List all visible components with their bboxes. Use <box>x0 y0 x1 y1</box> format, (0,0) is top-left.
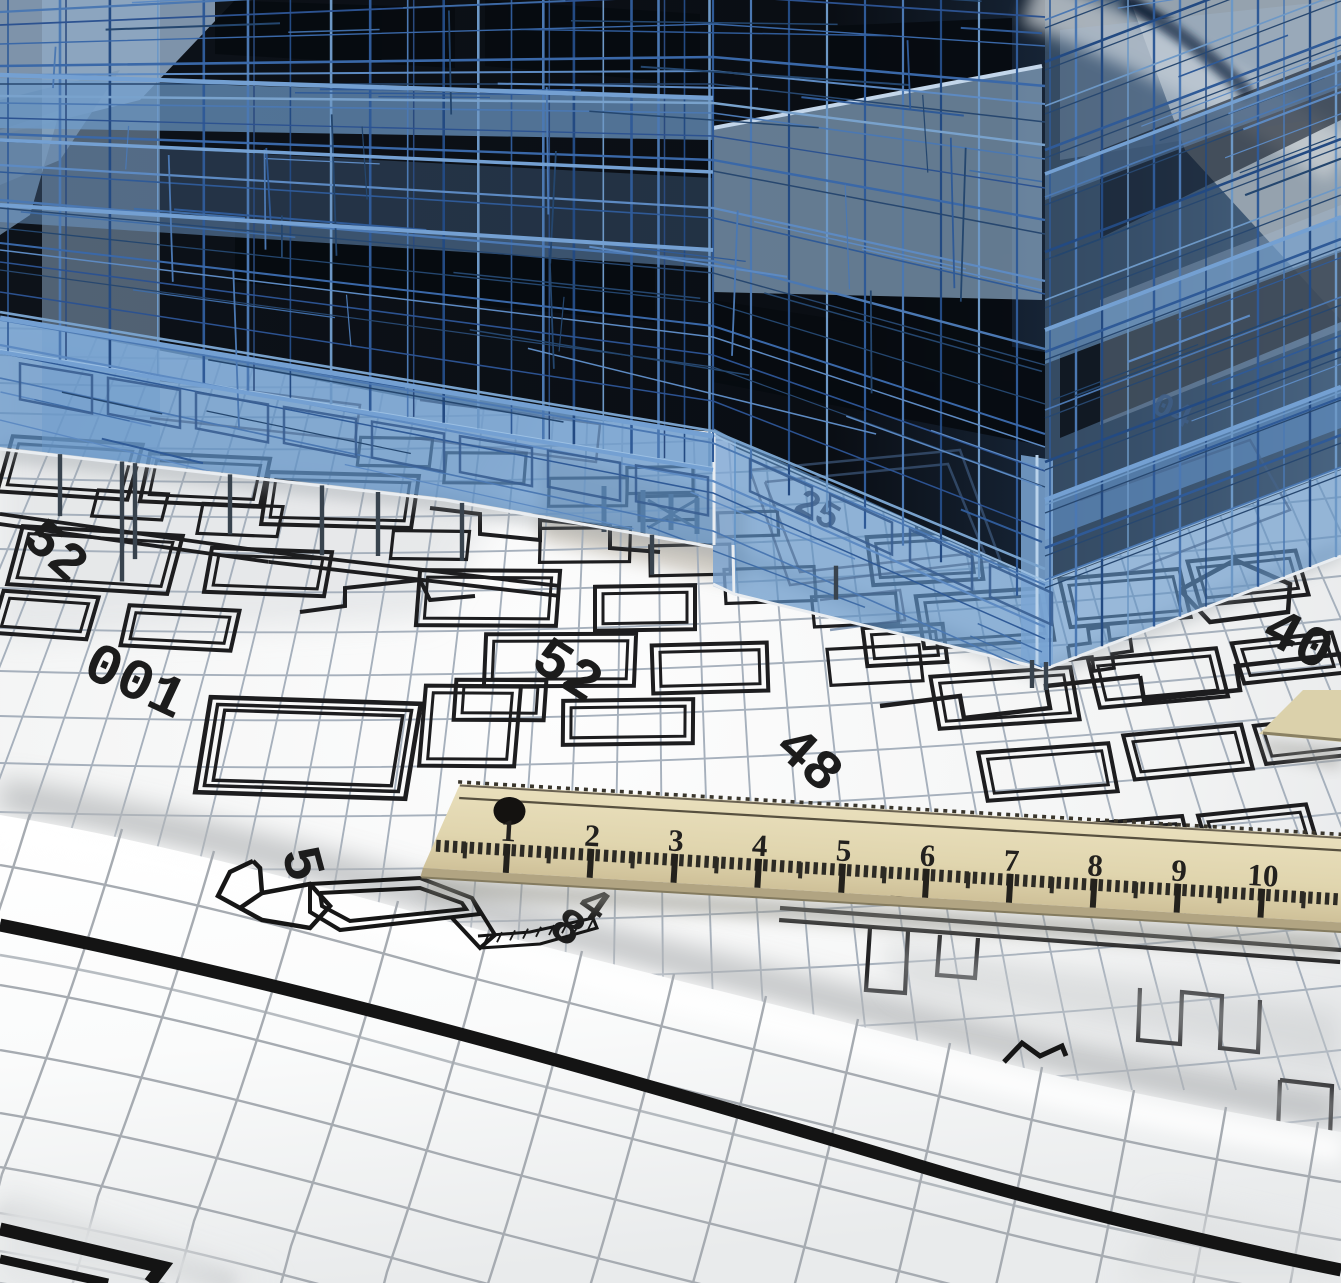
svg-text:8: 8 <box>1087 847 1105 883</box>
svg-text:9: 9 <box>1170 852 1188 888</box>
svg-text:3: 3 <box>667 822 685 858</box>
svg-text:2: 2 <box>583 818 601 854</box>
svg-text:7: 7 <box>1003 842 1021 878</box>
svg-text:6: 6 <box>919 837 937 873</box>
svg-text:4: 4 <box>751 827 769 863</box>
svg-text:5: 5 <box>835 832 853 868</box>
svg-text:10: 10 <box>1246 857 1279 894</box>
svg-text:1: 1 <box>500 813 518 849</box>
